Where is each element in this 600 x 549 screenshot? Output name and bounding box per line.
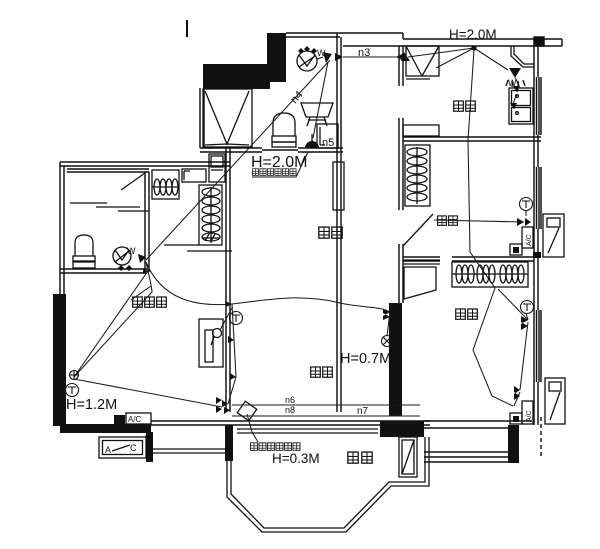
svg-text:C: C — [130, 443, 137, 453]
svg-text:H=2.0M: H=2.0M — [449, 27, 497, 42]
svg-text:H=1.2M: H=1.2M — [66, 397, 117, 413]
svg-text:W: W — [127, 246, 136, 256]
svg-text:A/C: A/C — [526, 410, 533, 422]
svg-text:H=0.3M: H=0.3M — [272, 451, 320, 466]
svg-text:n7: n7 — [357, 406, 369, 417]
svg-text:W: W — [317, 48, 326, 58]
svg-text:n8: n8 — [285, 405, 295, 415]
svg-text:W: W — [508, 78, 517, 88]
svg-text:n5: n5 — [322, 137, 334, 149]
svg-text:n3: n3 — [358, 47, 370, 59]
svg-text:H=0.7M: H=0.7M — [340, 351, 391, 367]
svg-text:A: A — [105, 445, 111, 455]
svg-text:A/C: A/C — [526, 234, 533, 246]
svg-text:n6: n6 — [285, 395, 295, 405]
svg-text:H=2.0M: H=2.0M — [251, 154, 307, 171]
svg-text:A/C: A/C — [128, 415, 142, 424]
